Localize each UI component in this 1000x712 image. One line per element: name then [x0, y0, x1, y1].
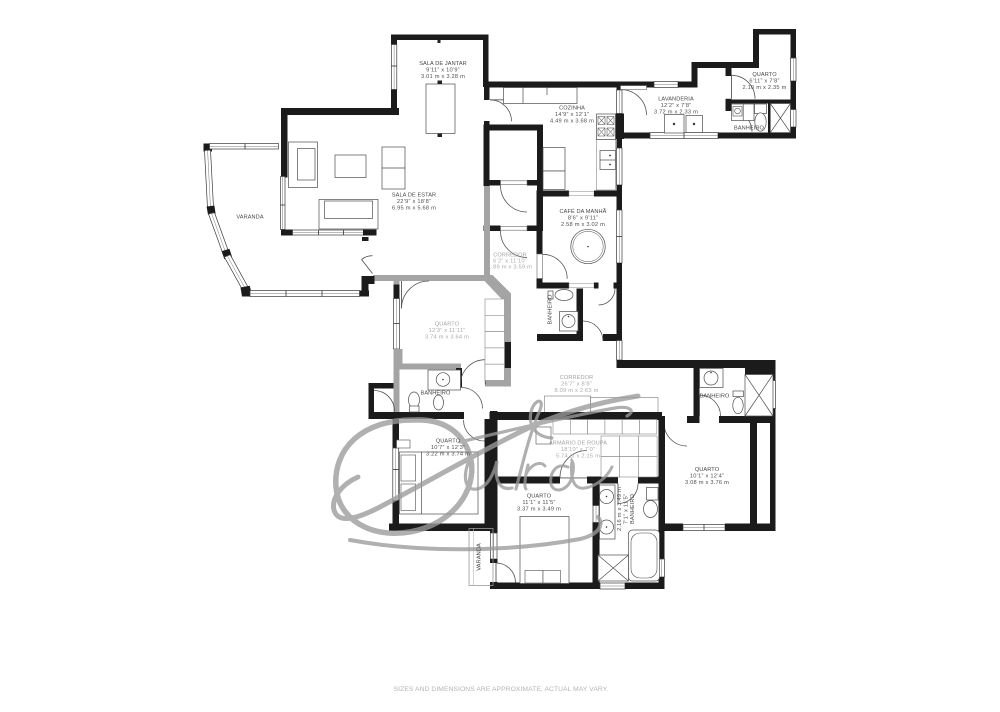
svg-text:CAFÉ DA MANHÃ: CAFÉ DA MANHÃ: [560, 208, 607, 215]
svg-text:QUARTO: QUARTO: [436, 439, 461, 445]
svg-text:8’6” x 9’11”: 8’6” x 9’11”: [568, 216, 598, 222]
svg-text:BANHEIRO: BANHEIRO: [630, 493, 636, 524]
svg-text:3.74 m x 3.64 m: 3.74 m x 3.64 m: [425, 335, 469, 341]
svg-text:COZINHA: COZINHA: [559, 106, 585, 112]
svg-text:26’7” x 8’8”: 26’7” x 8’8”: [561, 382, 592, 388]
svg-text:10’7” x 12’3”: 10’7” x 12’3”: [431, 445, 465, 451]
svg-text:SIZES AND DIMENSIONS ARE APPRO: SIZES AND DIMENSIONS ARE APPROXIMATE, AC…: [394, 686, 609, 693]
svg-text:2.10 m x 2.35 m: 2.10 m x 2.35 m: [742, 85, 786, 91]
svg-text:7’1” x 11’5”: 7’1” x 11’5”: [624, 494, 630, 524]
svg-text:8.09 m x 2.63 m: 8.09 m x 2.63 m: [554, 388, 598, 394]
svg-text:1.89 m x 3.59 m: 1.89 m x 3.59 m: [488, 265, 532, 271]
svg-text:QUARTO: QUARTO: [527, 494, 552, 500]
svg-text:3.72 m x 2.33 m: 3.72 m x 2.33 m: [654, 110, 698, 116]
svg-text:VARANDA: VARANDA: [236, 215, 263, 221]
svg-text:QUARTO: QUARTO: [695, 467, 720, 473]
svg-text:4.49 m x 3.68 m: 4.49 m x 3.68 m: [550, 119, 594, 125]
svg-text:3.01 m x 3.28 m: 3.01 m x 3.28 m: [421, 74, 465, 80]
svg-text:SALA DE ESTAR: SALA DE ESTAR: [392, 193, 436, 199]
svg-text:2.58 m x 3.02 m: 2.58 m x 3.02 m: [561, 222, 605, 228]
svg-text:3.08 m x 3.76 m: 3.08 m x 3.76 m: [685, 480, 729, 486]
svg-text:12’3” x 11’11”: 12’3” x 11’11”: [429, 328, 466, 334]
svg-text:BANHEIRO: BANHEIRO: [734, 126, 765, 132]
svg-text:BANHEIRO: BANHEIRO: [548, 294, 554, 325]
svg-text:12’2” x 7’8”: 12’2” x 7’8”: [661, 103, 692, 109]
svg-text:CORREDOR: CORREDOR: [560, 375, 593, 381]
svg-text:9’11” x 10’9”: 9’11” x 10’9”: [426, 68, 460, 74]
svg-text:5.74 m x 2.15 m: 5.74 m x 2.15 m: [556, 454, 600, 460]
svg-text:2.16 m x 3.49 m: 2.16 m x 3.49 m: [617, 487, 623, 531]
svg-text:22’9” x 18’8”: 22’9” x 18’8”: [397, 199, 431, 205]
svg-text:BANHEIRO: BANHEIRO: [420, 391, 451, 397]
svg-text:3.22 m x 3.74 m: 3.22 m x 3.74 m: [426, 452, 470, 458]
svg-text:SALA DE JANTAR: SALA DE JANTAR: [419, 61, 467, 67]
svg-text:3.37 m x 3.49 m: 3.37 m x 3.49 m: [517, 507, 561, 513]
svg-text:10’1” x 12’4”: 10’1” x 12’4”: [690, 474, 724, 480]
svg-text:ARMÁRIO DE ROUPA: ARMÁRIO DE ROUPA: [549, 440, 607, 447]
svg-text:18’10” x 7’0”: 18’10” x 7’0”: [561, 447, 595, 453]
svg-text:VARANDA: VARANDA: [477, 543, 483, 571]
svg-text:14’9” x 12’1”: 14’9” x 12’1”: [555, 112, 589, 118]
svg-text:BANHEIRO: BANHEIRO: [699, 394, 730, 400]
svg-text:6.95 m x 5.68 m: 6.95 m x 5.68 m: [392, 206, 436, 212]
svg-text:QUARTO: QUARTO: [752, 72, 777, 78]
svg-text:6’11” x 7’8”: 6’11” x 7’8”: [749, 79, 779, 85]
svg-text:11’1” x 11’5”: 11’1” x 11’5”: [522, 500, 555, 506]
svg-text:QUARTO: QUARTO: [435, 322, 460, 328]
svg-text:LAVANDERIA: LAVANDERIA: [658, 97, 694, 103]
